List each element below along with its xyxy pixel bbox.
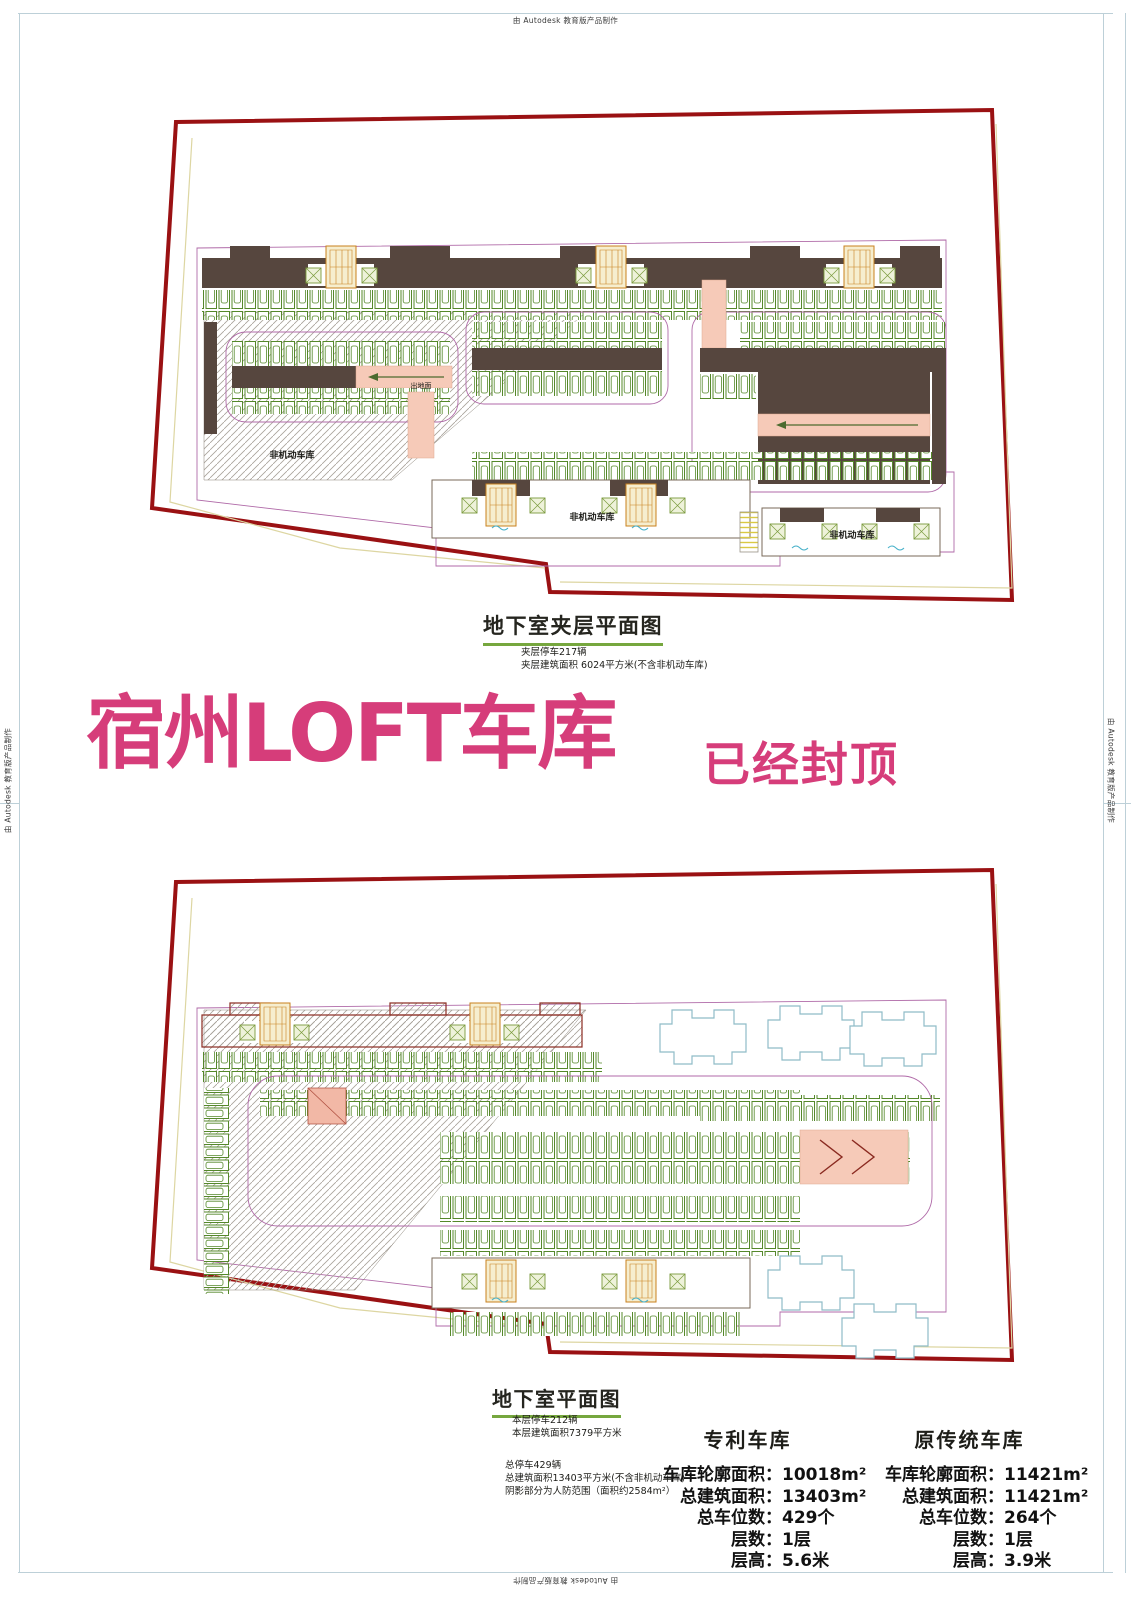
parking-stalls-below-building bbox=[450, 1312, 740, 1336]
deck-bar bbox=[204, 322, 217, 434]
stat-value: 1层 bbox=[1004, 1530, 1033, 1552]
parking-stalls-top-row bbox=[202, 1052, 602, 1082]
building-bottom-center bbox=[432, 1258, 750, 1308]
note-line: 夹层停车217辆 bbox=[521, 646, 708, 659]
building-row bbox=[202, 246, 942, 288]
stat-row: 车库轮廓面积： 11421m² bbox=[852, 1465, 1087, 1487]
project-title: 宿州LOFT车库 bbox=[86, 688, 615, 780]
stair-core bbox=[844, 246, 874, 288]
stat-value: 11421m² bbox=[1004, 1487, 1088, 1509]
stat-value: 5.6米 bbox=[782, 1551, 829, 1573]
note-line: 夹层建筑面积 6024平方米(不含非机动车库) bbox=[521, 659, 708, 672]
stat-label: 总建筑面积： bbox=[852, 1487, 1004, 1509]
frame-line-right-inner bbox=[1103, 13, 1104, 1573]
autodesk-banner-top: 由 Autodesk 教育版产品制作 bbox=[0, 15, 1131, 26]
non-motor-garage-right: 非机动车库 bbox=[740, 508, 940, 556]
autodesk-banner-right: 由 Autodesk 教育版产品制作 bbox=[1106, 691, 1117, 851]
stat-row: 层高： 5.6米 bbox=[630, 1551, 865, 1573]
non-motor-label-left: 非机动车库 bbox=[269, 449, 314, 461]
parking-stalls-bottom-row bbox=[440, 1230, 800, 1256]
basement-plan-notes: 本层停车212辆 本层建筑面积7379平方米 bbox=[512, 1414, 622, 1440]
tower-outline bbox=[842, 1304, 928, 1358]
tower-outline bbox=[768, 1006, 854, 1060]
stat-value: 1层 bbox=[782, 1530, 811, 1552]
cad-sheet: { "page": { "autodesk_credit": "由 Autode… bbox=[0, 0, 1131, 1600]
ramp-to-ground-right bbox=[702, 280, 726, 348]
frame-line-top bbox=[18, 13, 1113, 14]
ramp-left bbox=[308, 1088, 346, 1124]
mezzanine-plan-title-text: 地下室夹层平面图 bbox=[483, 614, 663, 638]
note-line: 本层建筑面积7379平方米 bbox=[512, 1427, 622, 1440]
stat-label: 总建筑面积： bbox=[630, 1487, 782, 1509]
non-motor-garage-center: 非机动车库 bbox=[432, 480, 750, 538]
non-motor-label-center: 非机动车库 bbox=[569, 511, 614, 523]
parking-island-center bbox=[472, 322, 662, 396]
basement-plan-title-text: 地下室平面图 bbox=[492, 1387, 621, 1411]
stats-traditional-garage: 原传统车库 车库轮廓面积： 11421m² 总建筑面积： 11421m² 总车位… bbox=[852, 1424, 1087, 1573]
parking-stalls-bottom-row bbox=[472, 452, 932, 480]
stat-label: 层数： bbox=[852, 1530, 1004, 1552]
stat-row: 车库轮廓面积： 10018m² bbox=[630, 1465, 865, 1487]
stair-core bbox=[596, 246, 626, 288]
mezzanine-plan-title: 地下室夹层平面图 bbox=[483, 610, 663, 646]
stats-traditional-title: 原传统车库 bbox=[852, 1424, 1087, 1453]
tower-outline bbox=[850, 1012, 936, 1066]
basement-plan-drawing bbox=[140, 860, 1020, 1380]
stat-label: 总车位数： bbox=[630, 1508, 782, 1530]
non-motor-label-right: 非机动车库 bbox=[829, 529, 874, 541]
autodesk-banner-left: 由 Autodesk 教育版产品制作 bbox=[3, 701, 14, 861]
parking-stalls-left-column bbox=[204, 1088, 230, 1294]
stat-row: 总车位数： 264个 bbox=[852, 1508, 1087, 1530]
tower-outline bbox=[768, 1256, 854, 1310]
mezzanine-plan-drawing: 出地面 出地面 非机动车库 非机动车库 bbox=[140, 100, 1020, 620]
stats-patent-garage: 专利车库 车库轮廓面积： 10018m² 总建筑面积： 13403m² 总车位数… bbox=[630, 1424, 865, 1573]
stat-row: 层高： 3.9米 bbox=[852, 1551, 1087, 1573]
stat-label: 车库轮廓面积： bbox=[852, 1465, 1004, 1487]
stat-value: 264个 bbox=[1004, 1508, 1057, 1530]
project-status: 已经封顶 bbox=[703, 726, 899, 795]
ramp-right bbox=[800, 1130, 908, 1184]
stats-patent-title: 专利车库 bbox=[630, 1424, 865, 1453]
basement-plan-title: 地下室平面图 bbox=[492, 1383, 621, 1418]
stat-label: 总车位数： bbox=[852, 1508, 1004, 1530]
stat-row: 总建筑面积： 13403m² bbox=[630, 1487, 865, 1509]
stat-label: 层高： bbox=[630, 1551, 782, 1573]
building-row-hatched bbox=[202, 1003, 582, 1047]
ramp-to-ground-center bbox=[408, 392, 434, 458]
tower-outline bbox=[660, 1010, 746, 1064]
stat-row: 总车位数： 429个 bbox=[630, 1508, 865, 1530]
stat-label: 车库轮廓面积： bbox=[630, 1465, 782, 1487]
frame-line-left bbox=[19, 13, 20, 1573]
stat-value: 3.9米 bbox=[1004, 1551, 1051, 1573]
stat-label: 层高： bbox=[852, 1551, 1004, 1573]
stat-row: 层数： 1层 bbox=[852, 1530, 1087, 1552]
note-line: 本层停车212辆 bbox=[512, 1414, 622, 1427]
stat-label: 层数： bbox=[630, 1530, 782, 1552]
exit-ground-label: 出地面 bbox=[411, 381, 432, 390]
stat-row: 层数： 1层 bbox=[630, 1530, 865, 1552]
stat-row: 总建筑面积： 11421m² bbox=[852, 1487, 1087, 1509]
parking-stalls-top-row bbox=[202, 290, 942, 320]
stair-core bbox=[326, 246, 356, 288]
autodesk-banner-bottom: 由 Autodesk 教育版产品制作 bbox=[0, 1575, 1131, 1586]
frame-line-right-outer bbox=[1125, 13, 1126, 1573]
mezzanine-plan-notes: 夹层停车217辆 夹层建筑面积 6024平方米(不含非机动车库) bbox=[521, 646, 708, 672]
stat-value: 429个 bbox=[782, 1508, 835, 1530]
stat-value: 11421m² bbox=[1004, 1465, 1088, 1487]
